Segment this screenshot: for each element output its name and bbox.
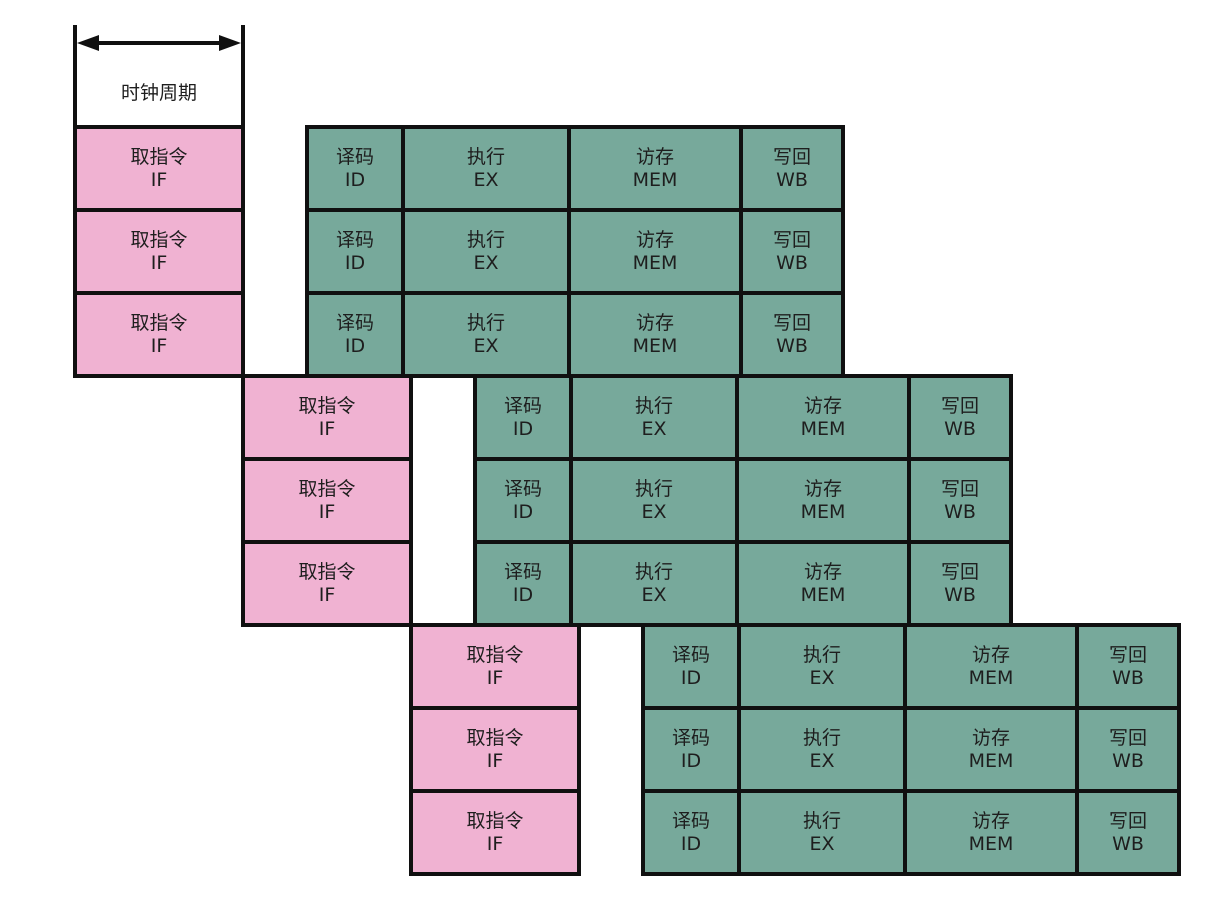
stage-label-zh: 取指令 bbox=[130, 312, 187, 335]
stage-label-en: WB bbox=[1112, 833, 1144, 856]
stage-label-zh: 译码 bbox=[504, 395, 542, 418]
stage-label-en: ID bbox=[681, 833, 701, 856]
stage-label-zh: 写回 bbox=[773, 229, 811, 252]
stage-label-en: IF bbox=[319, 584, 336, 607]
stage-label-en: EX bbox=[641, 584, 666, 607]
stage-label-zh: 写回 bbox=[1109, 727, 1147, 750]
pipeline-cell-if-row5: 取指令IF bbox=[241, 457, 413, 544]
stage-label-en: WB bbox=[944, 501, 976, 524]
pipeline-cell-if-row9: 取指令IF bbox=[409, 789, 581, 876]
clock-period-double-arrow-icon bbox=[77, 35, 241, 51]
pipeline-cell-if-row1: 取指令IF bbox=[73, 125, 245, 212]
pipeline-cell-mem-row7: 访存MEM bbox=[903, 623, 1079, 710]
stage-label-en: ID bbox=[681, 750, 701, 773]
stage-label-zh: 取指令 bbox=[298, 561, 355, 584]
pipeline-cell-id-row4: 译码ID bbox=[473, 374, 573, 461]
stage-label-zh: 执行 bbox=[467, 229, 505, 252]
pipeline-cell-if-row8: 取指令IF bbox=[409, 706, 581, 793]
pipeline-cell-id-row6: 译码ID bbox=[473, 540, 573, 627]
pipeline-cell-id-row3: 译码ID bbox=[305, 291, 405, 378]
pipeline-cell-wb-row6: 写回WB bbox=[907, 540, 1013, 627]
stage-label-en: WB bbox=[1112, 750, 1144, 773]
pipeline-cell-wb-row9: 写回WB bbox=[1075, 789, 1181, 876]
stage-label-zh: 执行 bbox=[803, 727, 841, 750]
pipeline-cell-id-row7: 译码ID bbox=[641, 623, 741, 710]
stage-label-en: EX bbox=[641, 501, 666, 524]
stage-label-zh: 取指令 bbox=[466, 644, 523, 667]
stage-label-zh: 执行 bbox=[635, 561, 673, 584]
stage-label-zh: 访存 bbox=[972, 727, 1010, 750]
stage-label-zh: 译码 bbox=[504, 478, 542, 501]
stage-label-zh: 译码 bbox=[336, 229, 374, 252]
stage-label-en: WB bbox=[776, 169, 808, 192]
stage-label-en: WB bbox=[776, 252, 808, 275]
pipeline-cell-wb-row4: 写回WB bbox=[907, 374, 1013, 461]
stage-label-en: ID bbox=[345, 252, 365, 275]
stage-label-en: EX bbox=[641, 418, 666, 441]
stage-label-zh: 执行 bbox=[467, 312, 505, 335]
stage-label-en: WB bbox=[944, 584, 976, 607]
pipeline-cell-wb-row5: 写回WB bbox=[907, 457, 1013, 544]
stage-label-en: ID bbox=[681, 667, 701, 690]
stage-label-en: MEM bbox=[969, 667, 1014, 690]
pipeline-cell-ex-row7: 执行EX bbox=[737, 623, 907, 710]
pipeline-cell-wb-row1: 写回WB bbox=[739, 125, 845, 212]
pipeline-cell-mem-row8: 访存MEM bbox=[903, 706, 1079, 793]
pipeline-cell-if-row7: 取指令IF bbox=[409, 623, 581, 710]
pipeline-cell-ex-row4: 执行EX bbox=[569, 374, 739, 461]
stage-label-en: EX bbox=[473, 335, 498, 358]
clock-period-label: 时钟周期 bbox=[73, 82, 245, 105]
stage-label-en: WB bbox=[776, 335, 808, 358]
stage-label-zh: 译码 bbox=[672, 644, 710, 667]
stage-label-zh: 取指令 bbox=[466, 727, 523, 750]
stage-label-zh: 访存 bbox=[636, 146, 674, 169]
pipeline-cell-if-row3: 取指令IF bbox=[73, 291, 245, 378]
stage-label-zh: 译码 bbox=[672, 727, 710, 750]
stage-label-en: MEM bbox=[633, 335, 678, 358]
stage-label-en: ID bbox=[345, 335, 365, 358]
arrow-head-left-icon bbox=[77, 35, 99, 51]
stage-label-zh: 取指令 bbox=[298, 395, 355, 418]
stage-label-zh: 译码 bbox=[504, 561, 542, 584]
pipeline-cell-ex-row6: 执行EX bbox=[569, 540, 739, 627]
stage-label-zh: 译码 bbox=[336, 312, 374, 335]
stage-label-en: IF bbox=[487, 667, 504, 690]
stage-label-zh: 访存 bbox=[972, 644, 1010, 667]
stage-label-zh: 译码 bbox=[336, 146, 374, 169]
stage-label-en: IF bbox=[487, 750, 504, 773]
stage-label-en: IF bbox=[487, 833, 504, 856]
pipeline-cell-ex-row3: 执行EX bbox=[401, 291, 571, 378]
pipeline-cell-ex-row1: 执行EX bbox=[401, 125, 571, 212]
stage-label-en: IF bbox=[151, 169, 168, 192]
stage-label-en: MEM bbox=[969, 833, 1014, 856]
pipeline-cell-id-row1: 译码ID bbox=[305, 125, 405, 212]
pipeline-cell-mem-row1: 访存MEM bbox=[567, 125, 743, 212]
stage-label-en: MEM bbox=[633, 169, 678, 192]
pipeline-cell-mem-row5: 访存MEM bbox=[735, 457, 911, 544]
stage-label-en: ID bbox=[513, 584, 533, 607]
stage-label-zh: 取指令 bbox=[130, 229, 187, 252]
stage-label-zh: 取指令 bbox=[298, 478, 355, 501]
stage-label-zh: 写回 bbox=[941, 395, 979, 418]
pipeline-cell-if-row4: 取指令IF bbox=[241, 374, 413, 461]
stage-label-en: IF bbox=[151, 335, 168, 358]
pipeline-cell-id-row5: 译码ID bbox=[473, 457, 573, 544]
pipeline-cell-ex-row2: 执行EX bbox=[401, 208, 571, 295]
stage-label-en: EX bbox=[809, 750, 834, 773]
stage-label-zh: 访存 bbox=[804, 478, 842, 501]
pipeline-cell-mem-row9: 访存MEM bbox=[903, 789, 1079, 876]
stage-label-zh: 写回 bbox=[773, 312, 811, 335]
stage-label-en: MEM bbox=[633, 252, 678, 275]
stage-label-en: MEM bbox=[969, 750, 1014, 773]
pipeline-cell-mem-row3: 访存MEM bbox=[567, 291, 743, 378]
stage-label-zh: 写回 bbox=[1109, 810, 1147, 833]
stage-label-en: MEM bbox=[801, 501, 846, 524]
stage-label-en: IF bbox=[319, 418, 336, 441]
stage-label-zh: 访存 bbox=[636, 229, 674, 252]
pipeline-cell-if-row2: 取指令IF bbox=[73, 208, 245, 295]
pipeline-cell-ex-row5: 执行EX bbox=[569, 457, 739, 544]
stage-label-en: WB bbox=[1112, 667, 1144, 690]
pipeline-cell-ex-row9: 执行EX bbox=[737, 789, 907, 876]
stage-label-zh: 访存 bbox=[804, 395, 842, 418]
pipeline-cell-if-row6: 取指令IF bbox=[241, 540, 413, 627]
stage-label-zh: 写回 bbox=[941, 561, 979, 584]
stage-label-en: MEM bbox=[801, 584, 846, 607]
pipeline-cell-wb-row7: 写回WB bbox=[1075, 623, 1181, 710]
stage-label-zh: 取指令 bbox=[466, 810, 523, 833]
stage-label-zh: 取指令 bbox=[130, 146, 187, 169]
pipeline-cell-ex-row8: 执行EX bbox=[737, 706, 907, 793]
stage-label-en: IF bbox=[319, 501, 336, 524]
stage-label-zh: 译码 bbox=[672, 810, 710, 833]
stage-label-zh: 执行 bbox=[635, 395, 673, 418]
pipeline-cell-mem-row6: 访存MEM bbox=[735, 540, 911, 627]
pipeline-cell-id-row2: 译码ID bbox=[305, 208, 405, 295]
stage-label-en: EX bbox=[809, 667, 834, 690]
stage-label-en: IF bbox=[151, 252, 168, 275]
stage-label-en: EX bbox=[809, 833, 834, 856]
stage-label-en: MEM bbox=[801, 418, 846, 441]
pipeline-cell-wb-row8: 写回WB bbox=[1075, 706, 1181, 793]
stage-label-zh: 访存 bbox=[972, 810, 1010, 833]
stage-label-zh: 执行 bbox=[803, 644, 841, 667]
arrow-head-right-icon bbox=[219, 35, 241, 51]
stage-label-en: EX bbox=[473, 252, 498, 275]
stage-label-zh: 执行 bbox=[467, 146, 505, 169]
stage-label-en: ID bbox=[345, 169, 365, 192]
stage-label-en: WB bbox=[944, 418, 976, 441]
pipeline-cell-mem-row2: 访存MEM bbox=[567, 208, 743, 295]
stage-label-en: ID bbox=[513, 501, 533, 524]
pipeline-diagram: 时钟周期 取指令IF译码ID执行EX访存MEM写回WB取指令IF译码ID执行EX… bbox=[0, 0, 1230, 916]
stage-label-zh: 访存 bbox=[804, 561, 842, 584]
stage-label-zh: 写回 bbox=[941, 478, 979, 501]
clock-period-tick-right bbox=[241, 25, 245, 125]
stage-label-zh: 访存 bbox=[636, 312, 674, 335]
pipeline-cell-mem-row4: 访存MEM bbox=[735, 374, 911, 461]
pipeline-cell-id-row8: 译码ID bbox=[641, 706, 741, 793]
stage-label-en: EX bbox=[473, 169, 498, 192]
pipeline-cell-id-row9: 译码ID bbox=[641, 789, 741, 876]
stage-label-zh: 执行 bbox=[803, 810, 841, 833]
pipeline-cell-wb-row3: 写回WB bbox=[739, 291, 845, 378]
stage-label-zh: 写回 bbox=[773, 146, 811, 169]
stage-label-en: ID bbox=[513, 418, 533, 441]
stage-label-zh: 写回 bbox=[1109, 644, 1147, 667]
arrow-line bbox=[93, 41, 225, 45]
pipeline-cell-wb-row2: 写回WB bbox=[739, 208, 845, 295]
stage-label-zh: 执行 bbox=[635, 478, 673, 501]
